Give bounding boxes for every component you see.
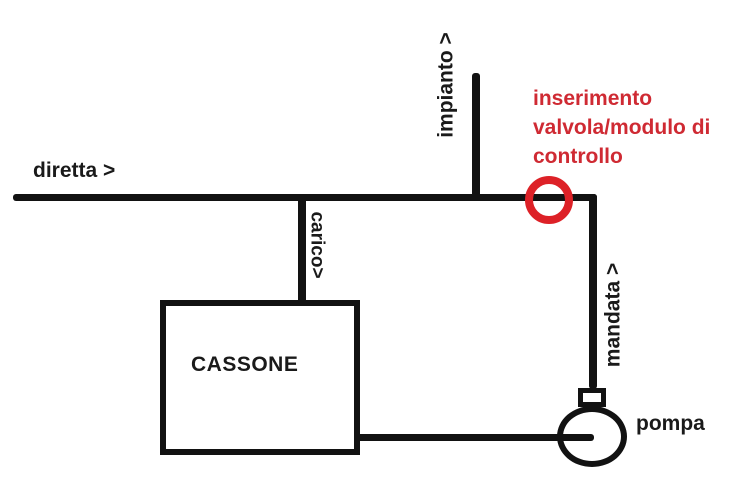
- carico-flow-label: carico>: [308, 211, 327, 278]
- valve-insertion-note: inserimento valvola/modulo di controllo: [533, 84, 710, 171]
- direct-flow-label: diretta >: [33, 160, 115, 181]
- impianto-flow-label: impianto >: [436, 32, 457, 138]
- pump-label: pompa: [636, 413, 705, 434]
- valve-note-line-2: valvola/modulo di: [533, 113, 710, 142]
- pipe-mandata-riser: [589, 194, 597, 389]
- diagram-canvas: CASSONE pompa inserimento valvola/modulo…: [0, 0, 750, 487]
- mandata-flow-label: mandata >: [603, 263, 624, 367]
- valve-insertion-point-circle: [525, 176, 573, 224]
- tank-box: CASSONE: [160, 300, 360, 455]
- valve-note-line-1: inserimento: [533, 84, 710, 113]
- tank-label: CASSONE: [191, 353, 298, 377]
- valve-note-line-3: controllo: [533, 142, 710, 171]
- pump-outlet-fitting: [578, 388, 606, 407]
- pump-circle: [557, 406, 627, 467]
- pipe-carico-branch: [298, 197, 306, 304]
- pipe-impianto-riser: [472, 73, 480, 200]
